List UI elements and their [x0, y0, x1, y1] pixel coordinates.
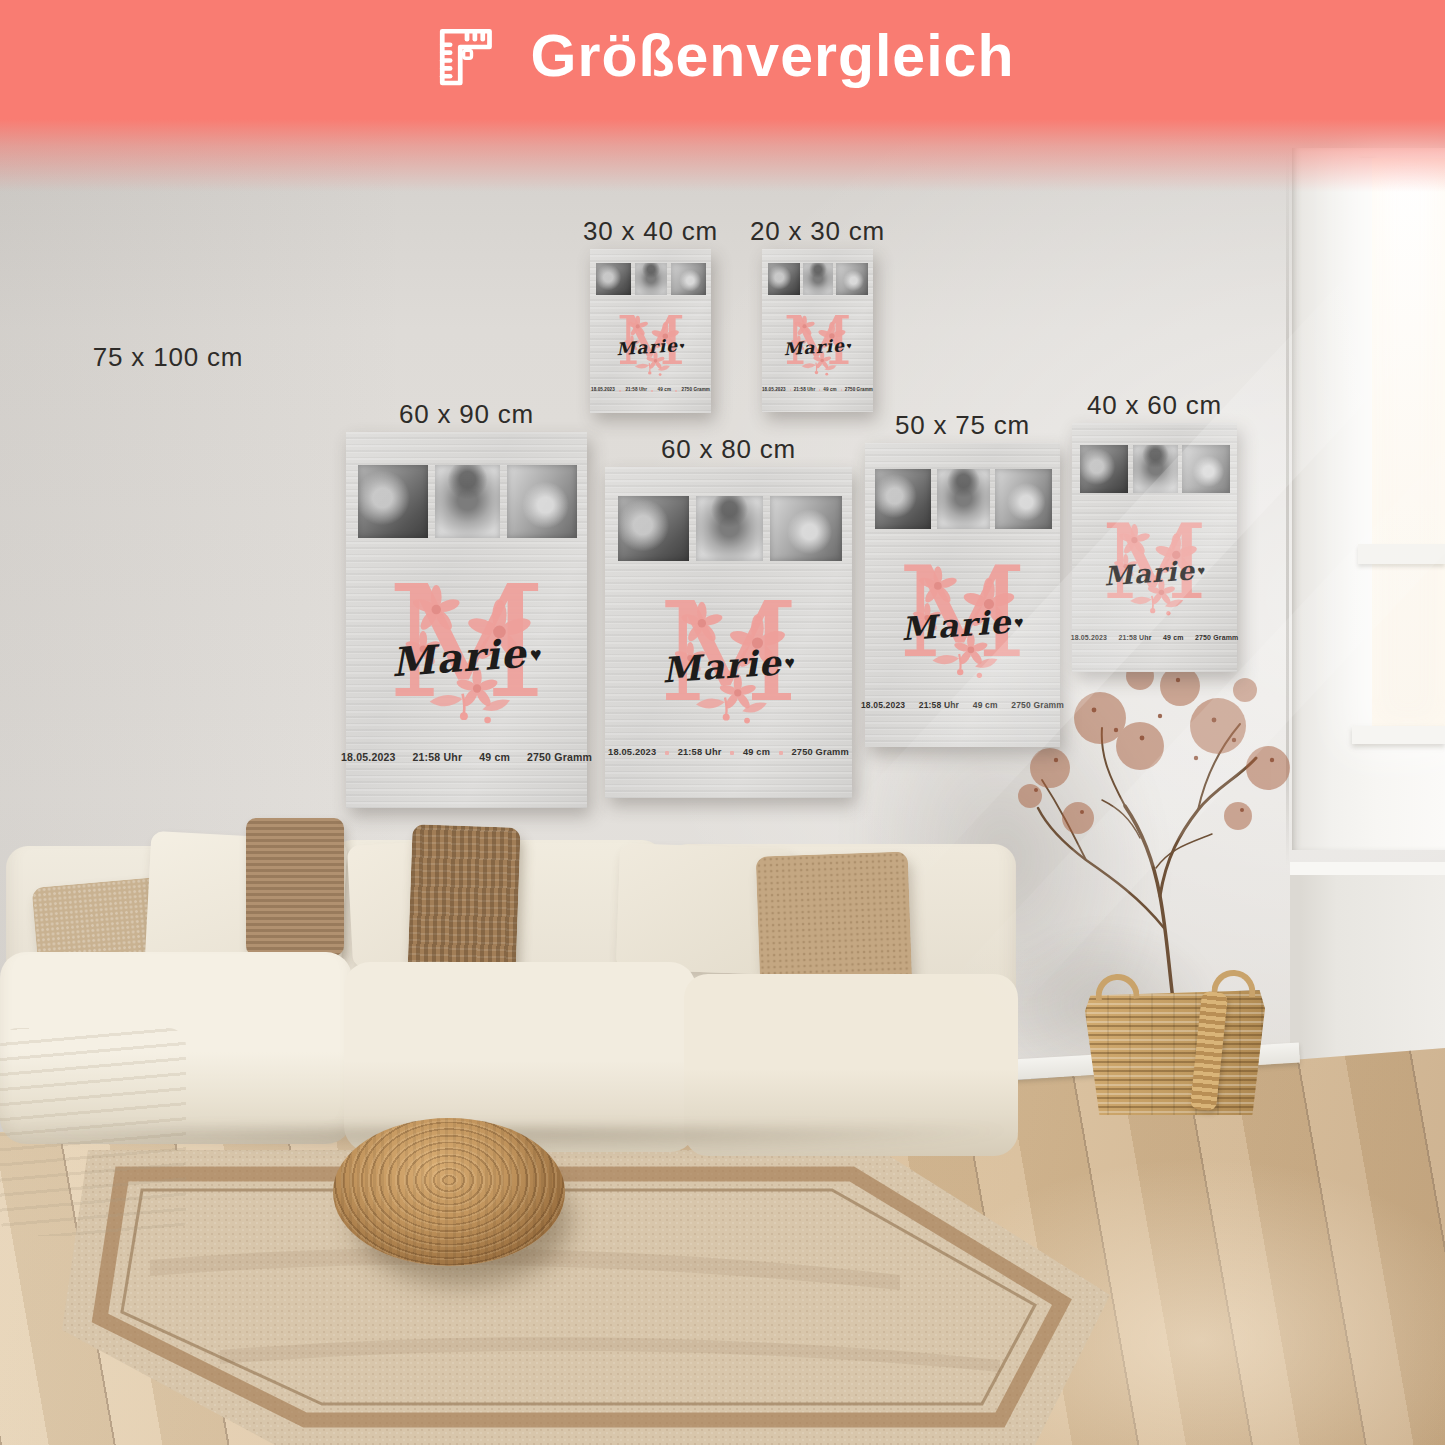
birth-stats: 18.05.2023 21:58 Uhr 49 cm 2750 Gramm	[346, 752, 587, 763]
smiling-baby-photo	[937, 469, 990, 529]
birth-weight: 2750 Gramm	[792, 748, 849, 757]
stat-separator-icon	[730, 751, 734, 755]
size-comparison-banner: Größenvergleich	[0, 0, 1445, 192]
smiling-baby-photo	[803, 263, 833, 295]
smiling-baby-photo	[696, 496, 763, 561]
birth-height: 49 cm	[823, 388, 836, 393]
baby-feet-photo	[836, 263, 868, 295]
birth-date: 18.05.2023	[1071, 635, 1107, 642]
posters-layer: 75 x 100 cm30 x 40 cm M Marie ♥ 18.05.20…	[0, 0, 1445, 1445]
baby-feet-photo	[1182, 445, 1230, 494]
smiling-baby-photo	[635, 263, 668, 295]
birth-poster: M Marie ♥ 18.05.2023 21:58 Uhr 49 cm 275…	[605, 467, 852, 798]
heart-icon: ♥	[529, 643, 542, 667]
birth-time: 21:58 Uhr	[919, 701, 959, 710]
birth-stats: 18.05.2023 21:58 Uhr 49 cm 2750 Gramm	[865, 701, 1060, 710]
baby-feet-photo	[995, 469, 1052, 529]
ruler-icon	[431, 20, 503, 92]
birth-height: 49 cm	[973, 701, 998, 710]
birth-time: 21:58 Uhr	[794, 388, 816, 393]
size-label: 75 x 100 cm	[93, 344, 243, 370]
birth-weight: 2750 Gramm	[682, 388, 710, 393]
birth-poster: M Marie ♥ 18.05.2023 21:58 Uhr 49 cm 275…	[1072, 423, 1237, 672]
size-label: 60 x 80 cm	[661, 436, 796, 462]
birth-time: 21:58 Uhr	[625, 388, 647, 393]
birth-weight: 2750 Gramm	[1011, 701, 1064, 710]
birth-weight: 2750 Gramm	[527, 752, 592, 763]
baby-name: Marie ♥	[603, 621, 854, 711]
sleeping-newborn-photo	[618, 496, 690, 561]
birth-date: 18.05.2023	[608, 748, 656, 757]
sleeping-newborn-photo	[1080, 445, 1128, 494]
birth-date: 18.05.2023	[591, 388, 615, 393]
size-label: 20 x 30 cm	[750, 218, 885, 244]
stat-separator-icon	[619, 390, 621, 392]
heart-icon: ♥	[846, 340, 852, 350]
size-comparison-scene: 75 x 100 cm30 x 40 cm M Marie ♥ 18.05.20…	[0, 0, 1445, 1445]
size-label: 30 x 40 cm	[583, 218, 718, 244]
birth-height: 49 cm	[1163, 635, 1183, 642]
heart-icon: ♥	[679, 341, 685, 351]
birth-stats: 18.05.2023 21:58 Uhr 49 cm 2750 Gramm	[762, 388, 873, 393]
baby-name: Marie ♥	[343, 608, 589, 707]
baby-name: Marie ♥	[589, 325, 712, 369]
birth-poster: M Marie ♥ 18.05.2023 21:58 Uhr 49 cm 275…	[865, 443, 1060, 747]
birth-stats: 18.05.2023 21:58 Uhr 49 cm 2750 Gramm	[590, 388, 711, 393]
birth-date: 18.05.2023	[341, 752, 396, 763]
birth-poster: M Marie ♥ 18.05.2023 21:58 Uhr 49 cm 275…	[590, 249, 711, 413]
birth-time: 21:58 Uhr	[1119, 635, 1152, 642]
birth-stats: 18.05.2023 21:58 Uhr 49 cm 2750 Gramm	[605, 748, 852, 757]
birth-stats: 18.05.2023 21:58 Uhr 49 cm 2750 Gramm	[1072, 635, 1237, 642]
birth-time: 21:58 Uhr	[412, 752, 462, 763]
baby-name: Marie ♥	[761, 325, 874, 369]
size-label: 40 x 60 cm	[1087, 392, 1222, 418]
baby-name: Marie ♥	[1070, 539, 1238, 605]
smiling-baby-photo	[1133, 445, 1178, 494]
sleeping-newborn-photo	[768, 263, 800, 295]
birth-height: 49 cm	[479, 752, 510, 763]
sleeping-newborn-photo	[358, 465, 428, 539]
sleeping-newborn-photo	[596, 263, 631, 295]
size-label: 60 x 90 cm	[399, 401, 534, 427]
birth-height: 49 cm	[743, 748, 770, 757]
stat-separator-icon	[665, 751, 669, 755]
birth-date: 18.05.2023	[762, 388, 786, 393]
sleeping-newborn-photo	[875, 469, 932, 529]
birth-time: 21:58 Uhr	[678, 748, 722, 757]
heart-icon: ♥	[1014, 614, 1025, 633]
banner-title: Größenvergleich	[531, 22, 1015, 90]
birth-poster: M Marie ♥ 18.05.2023 21:58 Uhr 49 cm 275…	[762, 249, 873, 412]
heart-icon: ♥	[784, 652, 796, 674]
heart-icon: ♥	[1197, 563, 1206, 579]
baby-feet-photo	[507, 465, 577, 539]
stat-separator-icon	[651, 390, 653, 392]
birth-weight: 2750 Gramm	[845, 388, 873, 393]
baby-feet-photo	[671, 263, 706, 295]
birth-height: 49 cm	[658, 388, 671, 393]
baby-feet-photo	[770, 496, 842, 561]
birth-date: 18.05.2023	[861, 701, 905, 710]
stat-separator-icon	[779, 751, 783, 755]
baby-name: Marie ♥	[863, 585, 1062, 665]
birth-weight: 2750 Gramm	[1195, 635, 1238, 642]
smiling-baby-photo	[435, 465, 500, 539]
stat-separator-icon	[675, 390, 677, 392]
size-label: 50 x 75 cm	[895, 412, 1030, 438]
birth-poster: M Marie ♥ 18.05.2023 21:58 Uhr 49 cm 275…	[346, 432, 587, 808]
